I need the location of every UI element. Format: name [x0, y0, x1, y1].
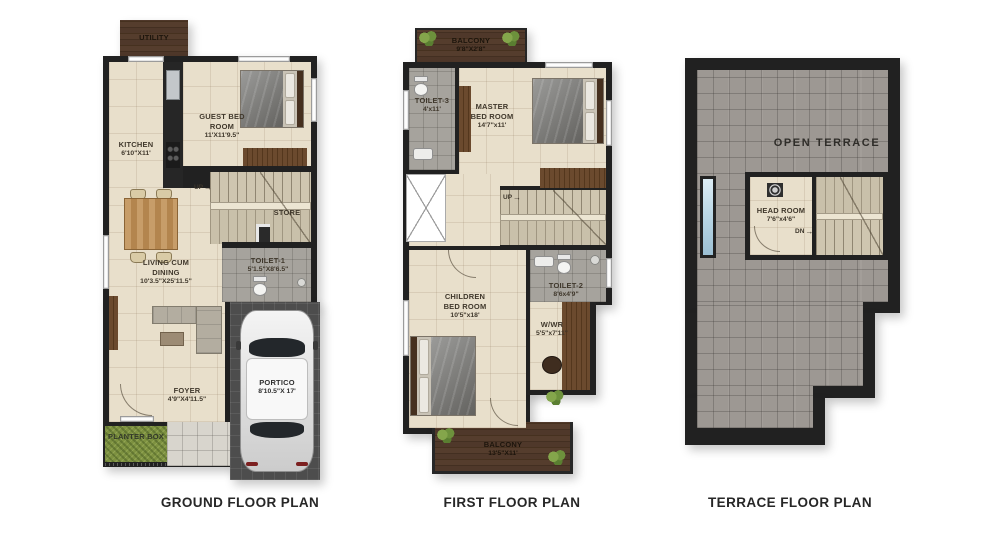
car-taillight: [296, 462, 308, 466]
entry-threshold: [120, 416, 154, 422]
guest-bedroom-label: GUEST BED ROOM11'X11'9.5": [194, 112, 250, 140]
guest-window-top: [238, 56, 290, 62]
foyer-label: FOYER4'9"X4'11.5": [155, 386, 219, 405]
toilet3-sink: [413, 148, 433, 160]
first-up-label: UP→: [503, 194, 521, 202]
terrace-floor-title: TERRACE FLOOR PLAN: [680, 495, 900, 510]
sofa-chaise: [196, 306, 222, 354]
children-bedroom-label: CHILDREN BED ROOM10'5"x18': [436, 292, 494, 320]
partition-wall: [530, 245, 606, 250]
toilet3-wc: [414, 76, 428, 97]
plant-icon: [419, 31, 437, 46]
tv-unit: [109, 296, 118, 350]
children-bed: [410, 336, 476, 416]
kitchen-counter: [163, 62, 183, 188]
toilet2-label: TOILET-28'6x4'9": [534, 281, 598, 300]
master-window-top: [545, 62, 593, 68]
open-terrace-label: OPEN TERRACE: [757, 136, 897, 150]
toilet1-label: TOILET-15'1.5"X8'6.5": [237, 256, 299, 275]
toilet2-wc: [557, 254, 571, 275]
coffee-table: [160, 332, 184, 346]
up-arrow-icon: →: [204, 184, 212, 192]
wwr-wardrobe: [562, 302, 590, 390]
toilet2-sink: [534, 256, 554, 267]
wwr-label: W/WR5'5"x7'11": [524, 320, 580, 339]
children-window-left: [403, 300, 409, 356]
ground-up-label: UP→: [194, 184, 212, 192]
up-arrow-icon: →: [513, 194, 521, 202]
master-window-right: [606, 100, 612, 146]
toilet2-window: [606, 258, 612, 288]
guest-wardrobe: [243, 148, 307, 166]
toilet3-label: TOILET-34'x11': [410, 96, 454, 115]
floor-plans-canvas: UTILITY GUEST BED ROOM11'X11'9.5" KITCHE…: [0, 0, 1004, 541]
kitchen-label: KITCHEN6'10"X11': [106, 140, 166, 159]
guest-window-right: [311, 78, 317, 122]
entry-step-tiles: [167, 422, 230, 466]
ground-floor-title: GROUND FLOOR PLAN: [130, 495, 350, 510]
plant-icon: [546, 390, 564, 405]
first-floor-title: FIRST FLOOR PLAN: [402, 495, 622, 510]
car-taillight: [246, 462, 258, 466]
living-window-left: [103, 235, 109, 289]
balcony-bottom-label: BALCONY13'5"X11': [458, 440, 548, 459]
toilet1-wc: [253, 276, 267, 297]
down-arrow-icon: →: [805, 228, 813, 236]
planter-ruler-marks: [105, 463, 167, 466]
wwr-chair: [542, 356, 562, 374]
toilet3-window: [403, 90, 409, 130]
terrace-dn-label: DN→: [795, 228, 813, 236]
partition-wall: [183, 166, 311, 172]
kitchen-sink: [166, 70, 180, 100]
toilet1-wall: [222, 242, 317, 248]
plant-icon: [502, 31, 520, 46]
car-mirror: [313, 341, 318, 350]
stair-diagonal-line: [553, 190, 606, 245]
master-bed: [532, 78, 604, 144]
master-bedroom-label: MASTER BED ROOM14'7"x11': [468, 102, 516, 130]
toilet2-shower: [590, 255, 600, 265]
living-dining-label: LIVING CUM DINING10'3.5"X25'11.5": [131, 258, 201, 286]
plant-icon: [548, 450, 566, 465]
car-mirror: [236, 341, 241, 350]
dining-table: [124, 198, 178, 250]
head-room-label: HEAD ROOM7'6"x4'6": [746, 206, 816, 225]
car-windshield: [249, 338, 305, 357]
double-height-void: [406, 174, 446, 242]
terrace-tiles-mid: [697, 302, 863, 386]
utility-label: UTILITY: [120, 33, 188, 43]
store-appliance: [256, 224, 270, 242]
kitchen-window: [128, 56, 164, 62]
portico-label: PORTICO8'10.5"X 17': [245, 378, 309, 397]
water-heater-icon: [767, 183, 783, 197]
master-wardrobe: [540, 168, 606, 188]
stove: [166, 142, 180, 168]
kitchen-floor: [109, 62, 163, 188]
plant-icon: [437, 428, 455, 443]
stair-diagonal-line: [840, 177, 883, 255]
skylight: [700, 176, 716, 258]
terrace-tiles-bottom: [697, 386, 813, 428]
planter-label: PLANTER BOX: [105, 432, 167, 442]
toilet1-shower: [297, 278, 306, 287]
car-rear-window: [250, 422, 305, 438]
store-label: STORE: [263, 208, 311, 218]
